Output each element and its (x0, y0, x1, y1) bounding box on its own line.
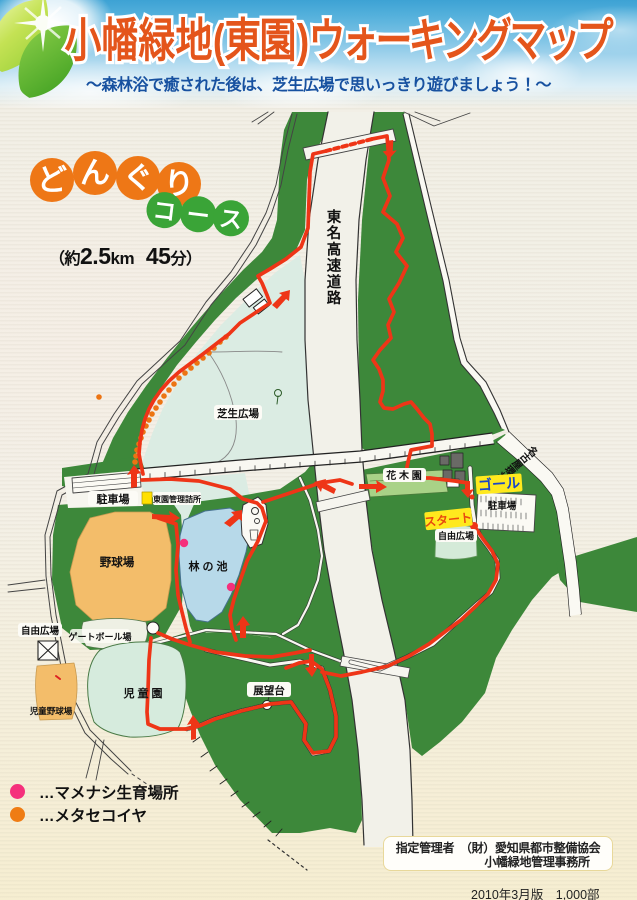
svg-text:ゲートボール場: ゲートボール場 (68, 631, 131, 642)
svg-text:緑: 緑 (139, 14, 176, 66)
svg-text:地: 地 (176, 14, 213, 66)
svg-text:東園管理詰所: 東園管理詰所 (153, 494, 201, 504)
svg-text:小: 小 (65, 14, 102, 66)
svg-text:ス: ス (218, 205, 244, 234)
svg-text:ゴール: ゴール (477, 474, 520, 493)
svg-text:ン: ン (443, 14, 480, 66)
svg-text:芝生広場: 芝生広場 (217, 407, 259, 420)
svg-text:ウ: ウ (309, 14, 346, 66)
svg-text:ん: ん (80, 157, 110, 190)
svg-text:児 童 園: 児 童 園 (122, 686, 162, 700)
svg-text:ど: ど (37, 164, 67, 197)
svg-text:(: ( (213, 14, 225, 66)
svg-text:野球場: 野球場 (100, 555, 135, 569)
svg-text:幡: 幡 (102, 14, 140, 66)
svg-text:駐車場: 駐車場 (487, 500, 517, 512)
svg-text:マ: マ (510, 14, 547, 66)
svg-text:児童野球場: 児童野球場 (29, 706, 73, 716)
svg-text:ー: ー (185, 201, 211, 230)
svg-text:ッ: ッ (544, 14, 581, 66)
svg-text:展望台: 展望台 (253, 684, 285, 697)
svg-text:園: 園 (260, 14, 297, 66)
svg-text:駐車場: 駐車場 (96, 492, 130, 506)
svg-text:プ: プ (577, 14, 615, 66)
svg-text:ォ: ォ (342, 14, 379, 66)
svg-text:林 の 池: 林 の 池 (188, 559, 227, 573)
svg-text:ぐ: ぐ (123, 162, 153, 195)
svg-text:グ: グ (477, 14, 514, 66)
svg-text:コ: コ (151, 197, 177, 226)
svg-text:東: 東 (225, 14, 262, 66)
svg-text:東名高速道路: 東名高速道路 (326, 208, 342, 307)
svg-text:花 木 園: 花 木 園 (385, 469, 422, 482)
svg-text:ー: ー (376, 14, 413, 66)
svg-text:): ) (297, 14, 309, 66)
svg-text:自由広場: 自由広場 (21, 625, 60, 637)
svg-text:キ: キ (409, 14, 446, 66)
svg-text:自由広場: 自由広場 (438, 530, 474, 541)
